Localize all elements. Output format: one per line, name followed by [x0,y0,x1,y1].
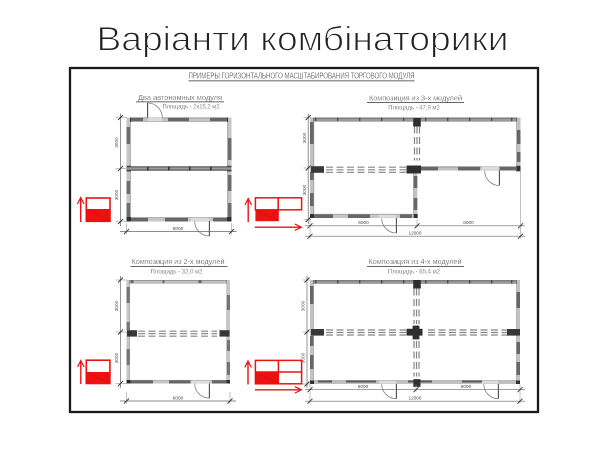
svg-text:3000: 3000 [301,300,306,311]
svg-text:Площадь - 47,9 м2: Площадь - 47,9 м2 [388,104,440,111]
svg-text:3000: 3000 [114,300,119,311]
svg-text:3000: 3000 [302,132,307,143]
svg-text:6000: 6000 [358,220,369,225]
svg-text:Композиция из 4-х модулей: Композиция из 4-х модулей [369,257,462,266]
svg-text:6000: 6000 [463,220,474,225]
svg-text:6000: 6000 [173,395,184,400]
svg-text:Площадь - 32,0 м2: Площадь - 32,0 м2 [151,268,203,275]
svg-text:Варіанти комбінаторики: Варіанти комбінаторики [97,21,509,59]
svg-text:3000: 3000 [302,184,307,195]
svg-text:Площадь - 65,4 м2: Площадь - 65,4 м2 [388,268,440,275]
svg-text:6000: 6000 [173,226,184,231]
svg-text:6000: 6000 [358,384,369,389]
svg-text:3000: 3000 [114,137,119,148]
svg-text:ПРИМЕРЫ ГОРИЗОНТАЛЬНОГО МАСШТА: ПРИМЕРЫ ГОРИЗОНТАЛЬНОГО МАСШТАБИРОВАНИЯ … [189,72,415,81]
svg-text:12000: 12000 [409,230,423,235]
svg-text:3000: 3000 [114,352,119,363]
svg-text:12000: 12000 [409,395,423,400]
svg-text:Композиция из 3-х модулей: Композиция из 3-х модулей [369,93,462,102]
svg-text:Композиция из 2-х модулей: Композиция из 2-х модулей [132,257,225,266]
svg-text:3000: 3000 [114,189,119,200]
svg-text:Два автономных модуля: Два автономных модуля [138,93,222,102]
svg-text:Площадь - 2х15,2 м2: Площадь - 2х15,2 м2 [163,103,220,110]
svg-text:6000: 6000 [461,384,472,389]
